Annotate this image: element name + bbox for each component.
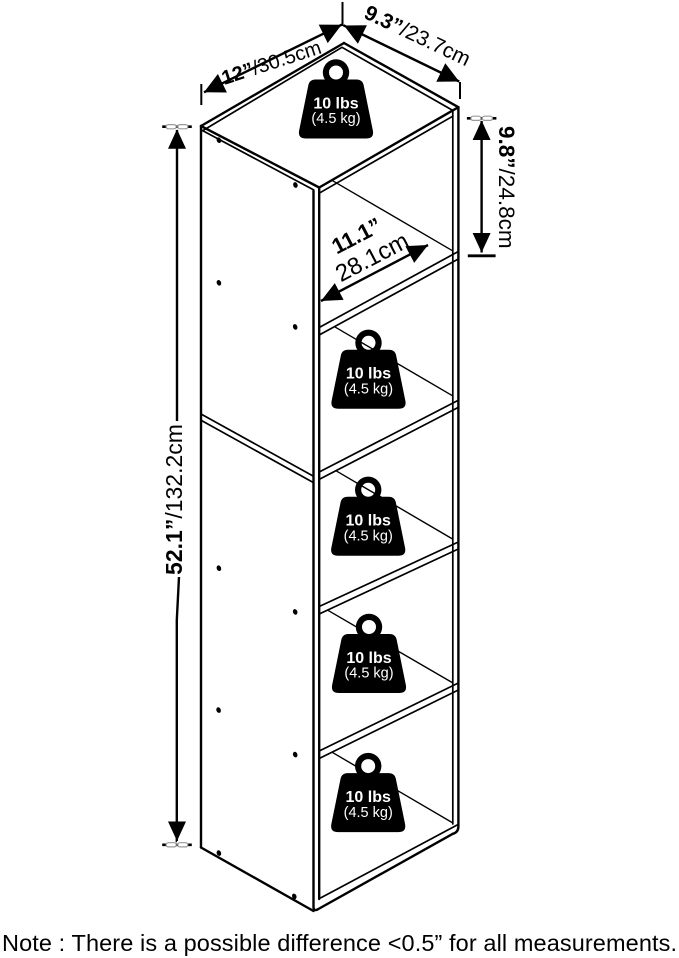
svg-text:(4.5 kg): (4.5 kg) [311, 111, 360, 127]
svg-text:(4.5 kg): (4.5 kg) [344, 529, 393, 545]
svg-text:52.1”/132.2cm: 52.1”/132.2cm [161, 424, 187, 575]
svg-text:Note : There is a possible dif: Note : There is a possible difference <0… [2, 930, 677, 956]
svg-text:10 lbs: 10 lbs [346, 650, 391, 667]
svg-text:(4.5 kg): (4.5 kg) [344, 666, 393, 682]
svg-text:10 lbs: 10 lbs [346, 513, 391, 530]
svg-text:9.8”/24.8cm: 9.8”/24.8cm [494, 126, 519, 249]
svg-text:10 lbs: 10 lbs [313, 95, 358, 112]
svg-text:(4.5 kg): (4.5 kg) [344, 805, 393, 821]
svg-text:10 lbs: 10 lbs [346, 789, 391, 806]
svg-text:10 lbs: 10 lbs [346, 366, 391, 383]
svg-text:(4.5 kg): (4.5 kg) [344, 382, 393, 398]
